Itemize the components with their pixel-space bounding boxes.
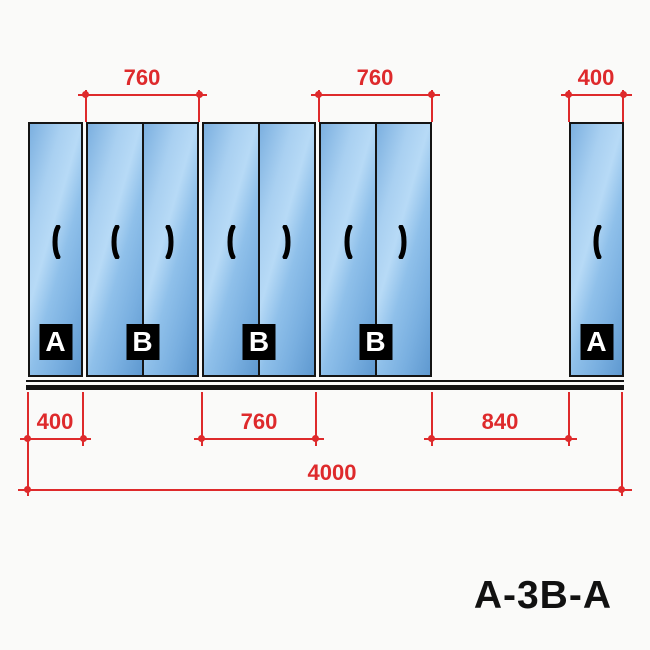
dimension-value: 760 bbox=[124, 66, 161, 90]
panel-group-a-left: A bbox=[28, 122, 83, 377]
extension-line bbox=[318, 90, 320, 122]
base-rail-top-line bbox=[26, 380, 624, 382]
extension-line bbox=[82, 392, 84, 446]
panel-label: B bbox=[243, 324, 276, 360]
extension-line bbox=[27, 392, 29, 496]
panel-label: A bbox=[39, 324, 72, 360]
door-handle-icon bbox=[343, 225, 352, 259]
extension-line bbox=[315, 392, 317, 446]
panel-group-b-2: B bbox=[202, 122, 316, 377]
panel-group-b-3: B bbox=[319, 122, 432, 377]
dimension-line bbox=[194, 438, 324, 440]
configuration-code: A-3B-A bbox=[474, 576, 612, 616]
panel-label: A bbox=[580, 324, 613, 360]
panel-group-a-right: A bbox=[569, 122, 624, 377]
dimension-value: 760 bbox=[241, 410, 278, 434]
door-handle-icon bbox=[166, 225, 175, 259]
door-handle-icon bbox=[592, 225, 601, 259]
extension-line bbox=[201, 392, 203, 446]
dimension-value: 840 bbox=[482, 410, 519, 434]
extension-line bbox=[85, 90, 87, 122]
door-handle-icon bbox=[227, 225, 236, 259]
dimension-value: 760 bbox=[357, 66, 394, 90]
door-handle-icon bbox=[51, 225, 60, 259]
extension-line bbox=[568, 392, 570, 446]
door-handle-icon bbox=[283, 225, 292, 259]
dimension-line bbox=[78, 94, 207, 96]
drawing-canvas: 760 760 400 A B bbox=[0, 0, 650, 650]
door-handle-icon bbox=[110, 225, 119, 259]
extension-line bbox=[622, 90, 624, 122]
extension-line bbox=[568, 90, 570, 122]
dimension-value: 400 bbox=[37, 410, 74, 434]
base-rail bbox=[26, 385, 624, 390]
extension-line bbox=[621, 392, 623, 496]
extension-line bbox=[198, 90, 200, 122]
door-handle-icon bbox=[399, 225, 408, 259]
extension-line bbox=[431, 90, 433, 122]
dimension-line bbox=[18, 489, 632, 491]
dimension-value: 400 bbox=[578, 66, 615, 90]
panel-group-b-1: B bbox=[86, 122, 199, 377]
dimension-line bbox=[424, 438, 577, 440]
dimension-value: 4000 bbox=[308, 461, 357, 485]
dimension-line bbox=[311, 94, 440, 96]
extension-line bbox=[431, 392, 433, 446]
panel-label: B bbox=[359, 324, 392, 360]
panel-label: B bbox=[126, 324, 159, 360]
